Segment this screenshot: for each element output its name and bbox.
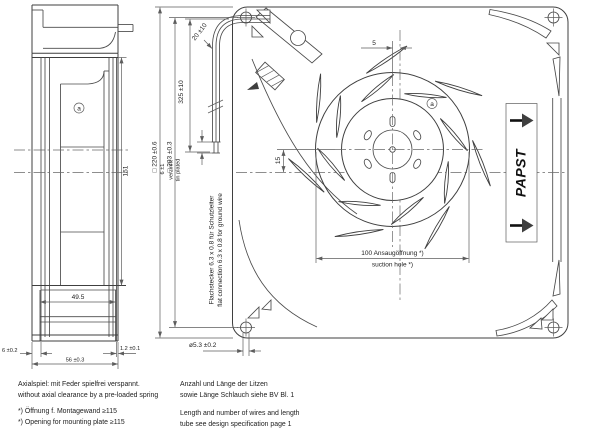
corner-bottom-left [239, 220, 317, 327]
note-axial-en: without axial clearance by a pre-loaded … [17, 392, 158, 399]
impeller-blade [391, 197, 423, 224]
corner-bottom-right [496, 260, 560, 336]
note-wires-de1: Anzahl und Länge der Litzen [180, 381, 268, 388]
note-wires-de2: sowie Länge Schlauch siehe BV Bl. 1 [180, 392, 294, 399]
impeller: a [288, 46, 490, 249]
fan-technical-drawing: a 151 49.5 6 ±0.2 [0, 0, 600, 429]
cable-break-mark [208, 106, 223, 113]
note-opening-en: *) Opening for mounting plate ≥115 [18, 419, 125, 426]
impeller-blade [336, 96, 340, 138]
dim-151-label: 151 [123, 165, 130, 176]
tinned-label-de: verzinnt [169, 160, 175, 180]
dim-6-1-label: 6 ±1 [160, 164, 166, 175]
side-view-wire [118, 25, 133, 32]
impeller-blade [404, 93, 446, 97]
mounting-hole-bottom-right [545, 319, 563, 337]
dim-100-label-de: 100 Ansaugöffnung *) [361, 250, 423, 257]
connector-label-en: flat connection 6.3 x 0.8 for ground wir… [217, 193, 224, 307]
side-view: a [14, 5, 133, 341]
corner-top-right [489, 10, 560, 97]
impeller-blade [473, 140, 491, 186]
dim-15-label: 15 [275, 157, 282, 165]
dim-5-3-label: ø5.3 ±0.2 [189, 342, 217, 349]
connector-label-de: Flachstecker 6.3 x 0.8 für Schutzleiter [209, 195, 216, 305]
balance-mark-side: a [77, 106, 81, 113]
impeller-blade [440, 119, 467, 151]
connector-arrow-icon [247, 82, 259, 90]
note-wires-en2: tube see design specification page 1 [180, 421, 292, 428]
front-view: a PAPST [208, 7, 568, 338]
dim-6-02-label: 6 ±0.2 [2, 348, 18, 354]
cable-break-mark [208, 100, 223, 107]
impeller-blade [435, 81, 482, 96]
brand-label: PAPST [506, 104, 537, 243]
dim-100-label-en: suction hole *) [372, 262, 413, 269]
impeller-blade [444, 161, 448, 203]
note-opening-de: *) Öffnung f. Montagewand ≥115 [18, 407, 117, 415]
mounting-hole-top-left [237, 9, 255, 27]
cable-grommet-hole [291, 31, 306, 46]
note-wires-en1: Length and number of wires and length [180, 410, 300, 417]
technical-drawing-page: a 151 49.5 6 ±0.2 [0, 0, 600, 429]
mounting-hole-top-right [545, 9, 563, 27]
flat-connector [256, 62, 285, 90]
side-view-housing [32, 5, 133, 53]
tinned-label-en: tin plated [176, 159, 182, 182]
balance-mark-front: a [430, 101, 434, 108]
impeller-blade [335, 230, 384, 237]
impeller-blade [318, 148, 345, 180]
dim-49-5-label: 49.5 [72, 294, 85, 301]
note-axial-de: Axialspiel: mit Feder spielfrei verspann… [18, 381, 140, 388]
dim-5-label: 5 [372, 40, 376, 47]
dim-220-label: □ 220 ±0.6 [152, 141, 159, 172]
dim-56-label: 56 ±0.3 [66, 358, 85, 364]
impeller-blade [316, 74, 320, 123]
brand-name: PAPST [513, 148, 529, 197]
dim-20-label: 20 ±10 [191, 22, 209, 42]
notes: Axialspiel: mit Feder spielfrei verspann… [17, 381, 300, 428]
impeller-blade [362, 75, 394, 102]
impeller-blade [366, 46, 407, 73]
dim-1-2-label: 1.2 ±0.1 [120, 346, 140, 352]
mounting-hole-bottom-left [237, 319, 255, 337]
dim-325-label: 325 ±10 [178, 80, 185, 104]
